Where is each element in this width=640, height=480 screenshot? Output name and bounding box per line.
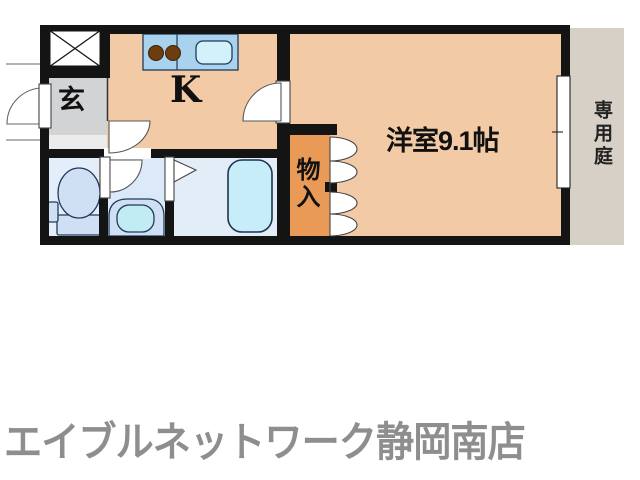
storage-label: 物入	[293, 157, 317, 211]
kitchen-sink-icon	[196, 41, 232, 64]
floor-plan-page: 玄 K 洋室9.1帖 物入 専用庭 エイブルネットワーク静岡南店	[0, 0, 640, 480]
stove-burner-icon	[166, 46, 181, 61]
agency-name-text: エイブルネットワーク静岡南店	[4, 408, 525, 468]
western-room-label: 洋室9.1帖	[386, 128, 499, 155]
kitchen-counter	[143, 34, 238, 70]
bathtub-icon	[228, 160, 272, 232]
washbasin-icon	[109, 199, 164, 236]
kitchen-label: K	[170, 72, 201, 108]
entrance-step	[49, 135, 107, 149]
private-garden-label: 専用庭	[592, 100, 611, 169]
shoe-box-icon	[49, 30, 101, 67]
stove-burner-icon	[149, 46, 164, 61]
entrance-label: 玄	[58, 87, 85, 114]
entrance-door-icon	[7, 84, 51, 128]
